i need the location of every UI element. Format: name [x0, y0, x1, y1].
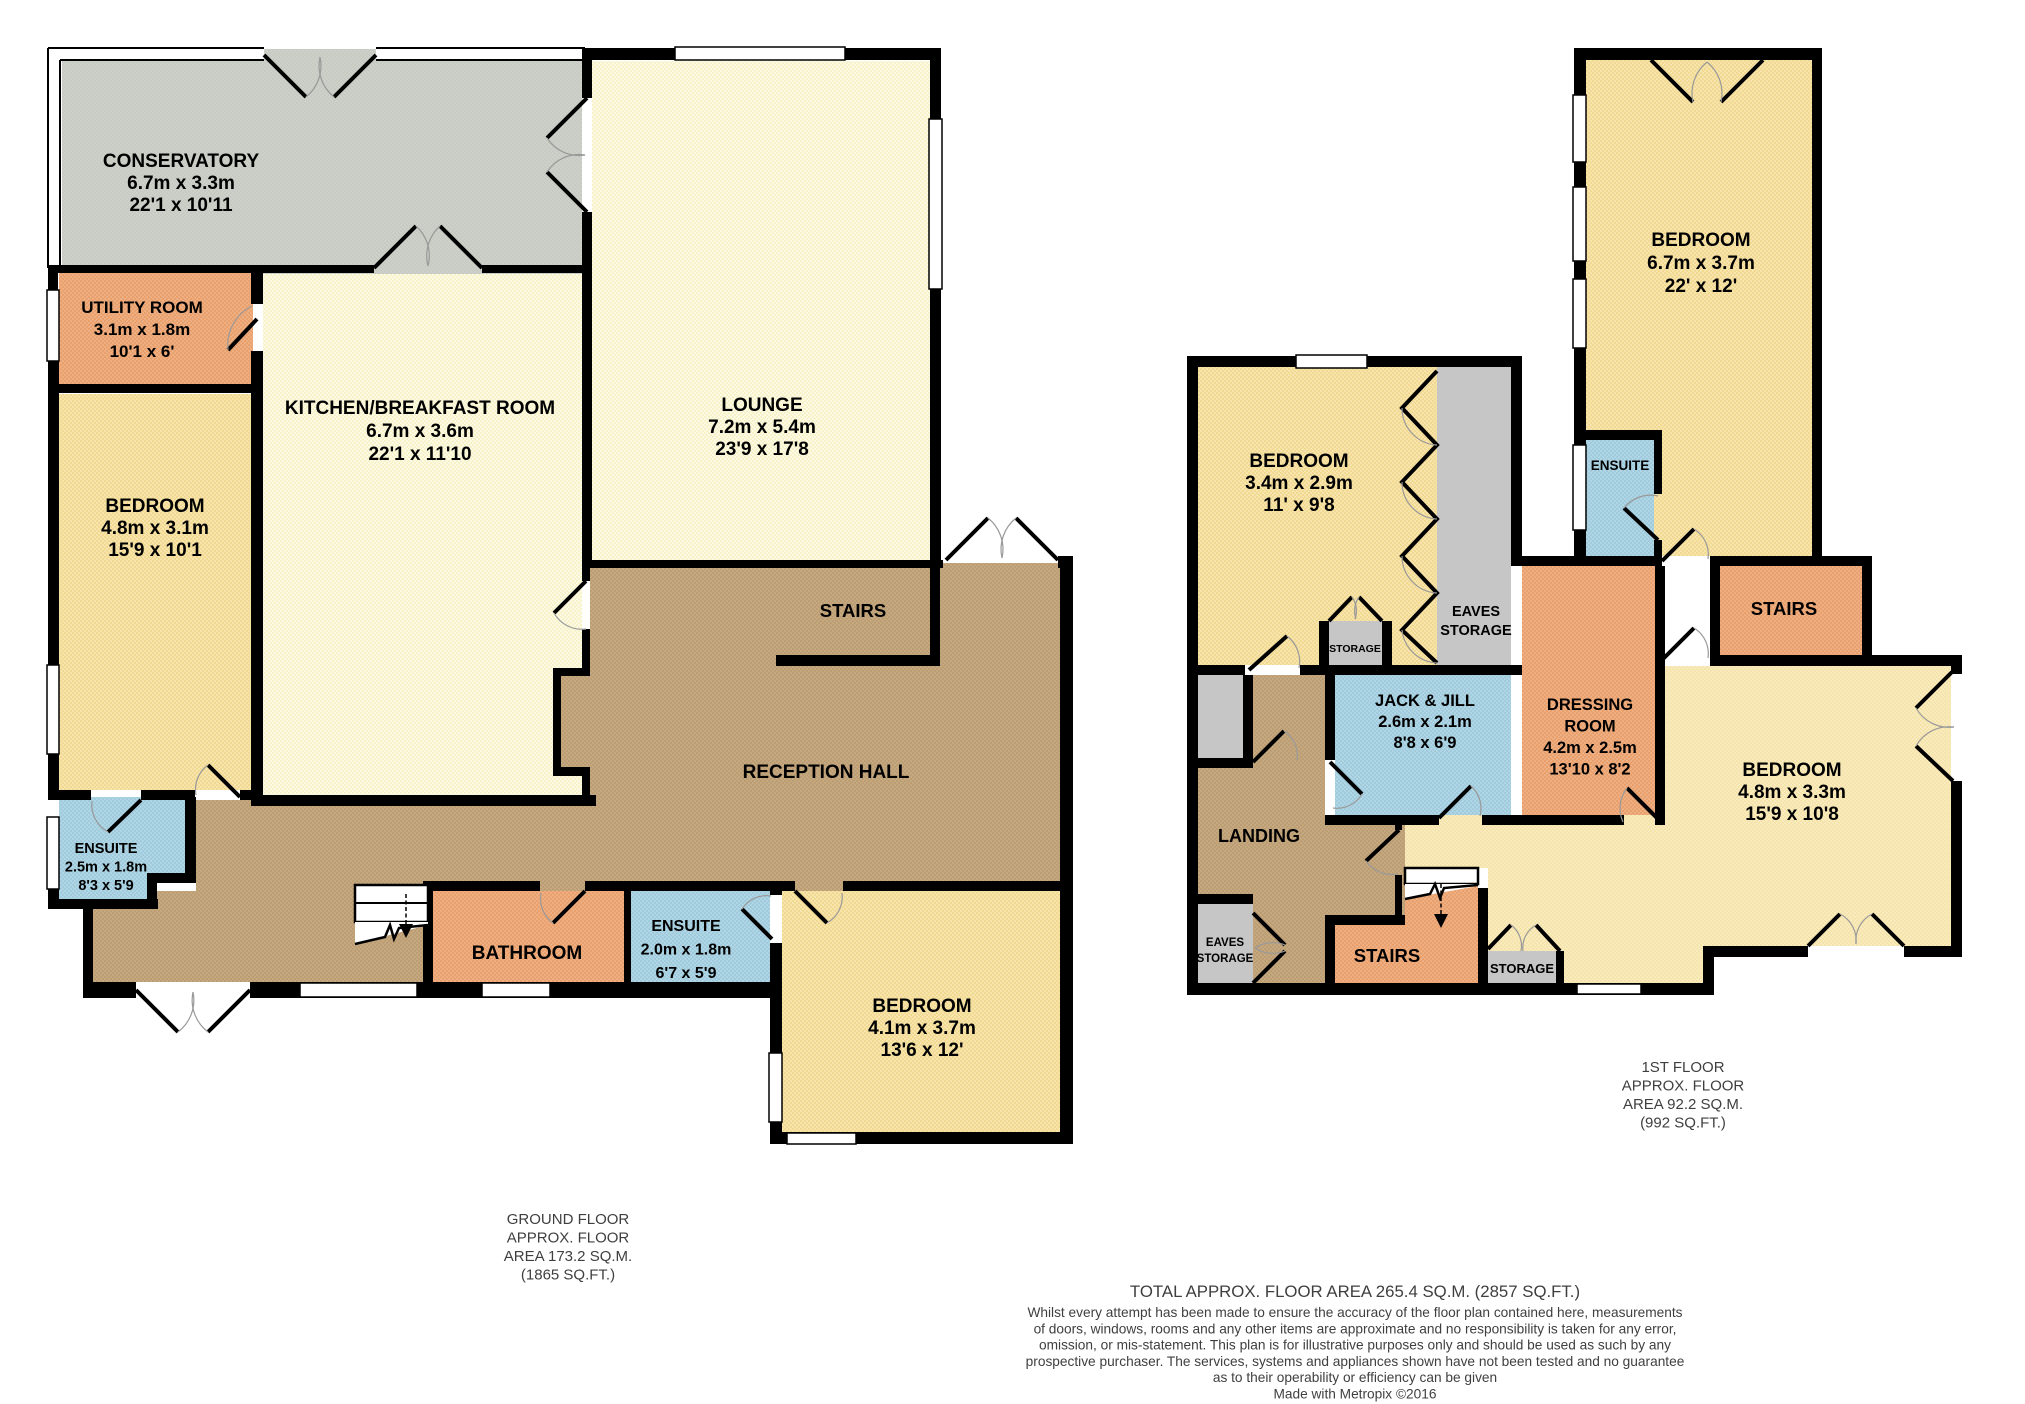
svg-text:2.5m x 1.8m: 2.5m x 1.8m — [65, 860, 147, 876]
svg-text:LOUNGE: LOUNGE — [721, 395, 802, 416]
svg-text:8'3 x 5'9: 8'3 x 5'9 — [78, 878, 133, 894]
svg-text:13'6 x 12': 13'6 x 12' — [881, 1040, 964, 1061]
svg-text:ENSUITE: ENSUITE — [75, 841, 138, 857]
svg-text:15'9 x 10'1: 15'9 x 10'1 — [108, 540, 202, 561]
svg-text:6.7m x 3.7m: 6.7m x 3.7m — [1647, 253, 1755, 274]
svg-text:1ST FLOOR: 1ST FLOOR — [1641, 1059, 1724, 1076]
svg-text:STAIRS: STAIRS — [1354, 945, 1420, 966]
svg-text:EAVES: EAVES — [1206, 937, 1244, 949]
svg-text:22'1 x 11'10: 22'1 x 11'10 — [368, 444, 471, 465]
svg-text:(992 SQ.FT.): (992 SQ.FT.) — [1640, 1115, 1726, 1132]
svg-text:2.0m x 1.8m: 2.0m x 1.8m — [641, 942, 732, 959]
svg-text:BATHROOM: BATHROOM — [472, 943, 582, 964]
svg-text:ENSUITE: ENSUITE — [651, 918, 721, 935]
svg-text:AREA 173.2 SQ.M.: AREA 173.2 SQ.M. — [504, 1248, 632, 1265]
svg-text:UTILITY ROOM: UTILITY ROOM — [81, 298, 203, 317]
svg-text:KITCHEN/BREAKFAST ROOM: KITCHEN/BREAKFAST ROOM — [285, 398, 555, 419]
svg-text:6'7 x 5'9: 6'7 x 5'9 — [656, 965, 717, 982]
svg-text:3.4m x 2.9m: 3.4m x 2.9m — [1245, 473, 1353, 494]
svg-text:DRESSING: DRESSING — [1547, 696, 1633, 714]
svg-text:6.7m x 3.6m: 6.7m x 3.6m — [366, 421, 474, 442]
svg-text:JACK & JILL: JACK & JILL — [1375, 692, 1475, 710]
svg-text:BEDROOM: BEDROOM — [1249, 451, 1348, 472]
svg-text:15'9 x 10'8: 15'9 x 10'8 — [1745, 804, 1839, 825]
svg-text:STORAGE: STORAGE — [1197, 953, 1254, 965]
svg-text:BEDROOM: BEDROOM — [872, 996, 971, 1017]
svg-text:omission, or mis-statement. Th: omission, or mis-statement. This plan is… — [1039, 1338, 1671, 1353]
svg-text:4.2m x 2.5m: 4.2m x 2.5m — [1543, 739, 1637, 757]
svg-text:23'9 x 17'8: 23'9 x 17'8 — [715, 439, 809, 460]
svg-text:Made with Metropix ©2016: Made with Metropix ©2016 — [1273, 1387, 1436, 1402]
svg-text:ENSUITE: ENSUITE — [1591, 458, 1650, 473]
svg-text:11' x 9'8: 11' x 9'8 — [1263, 495, 1334, 516]
svg-text:AREA 92.2 SQ.M.: AREA 92.2 SQ.M. — [1623, 1096, 1743, 1113]
svg-text:3.1m x 1.8m: 3.1m x 1.8m — [94, 320, 190, 339]
svg-text:BEDROOM: BEDROOM — [1742, 760, 1841, 781]
svg-text:Whilst every attempt has been: Whilst every attempt has been made to en… — [1027, 1305, 1682, 1320]
svg-text:10'1 x 6': 10'1 x 6' — [110, 342, 175, 361]
svg-text:APPROX. FLOOR: APPROX. FLOOR — [507, 1230, 630, 1247]
svg-text:STORAGE: STORAGE — [1440, 623, 1512, 639]
svg-text:ROOM: ROOM — [1564, 718, 1615, 736]
svg-text:7.2m x 5.4m: 7.2m x 5.4m — [708, 417, 816, 438]
svg-text:STAIRS: STAIRS — [1751, 598, 1817, 619]
svg-text:4.8m x 3.1m: 4.8m x 3.1m — [101, 518, 209, 539]
svg-text:RECEPTION HALL: RECEPTION HALL — [743, 762, 910, 783]
svg-text:of doors, windows, rooms and a: of doors, windows, rooms and any other i… — [1034, 1321, 1677, 1336]
svg-text:2.6m x 2.1m: 2.6m x 2.1m — [1378, 713, 1472, 731]
svg-text:22' x 12': 22' x 12' — [1665, 276, 1737, 297]
svg-text:4.1m x 3.7m: 4.1m x 3.7m — [868, 1018, 976, 1039]
svg-text:8'8 x 6'9: 8'8 x 6'9 — [1394, 734, 1457, 752]
svg-text:GROUND FLOOR: GROUND FLOOR — [507, 1211, 630, 1228]
svg-text:STORAGE: STORAGE — [1329, 643, 1381, 655]
svg-text:BEDROOM: BEDROOM — [105, 496, 204, 517]
svg-text:APPROX. FLOOR: APPROX. FLOOR — [1622, 1078, 1745, 1095]
svg-text:prospective purchaser. The ser: prospective purchaser. The services, sys… — [1026, 1354, 1685, 1369]
svg-text:as to their operability or eff: as to their operability or efficiency ca… — [1213, 1370, 1497, 1385]
svg-text:LANDING: LANDING — [1218, 826, 1300, 846]
svg-text:STORAGE: STORAGE — [1490, 961, 1554, 976]
svg-text:4.8m x 3.3m: 4.8m x 3.3m — [1738, 782, 1846, 803]
svg-text:TOTAL APPROX. FLOOR AREA 265.4: TOTAL APPROX. FLOOR AREA 265.4 SQ.M. (28… — [1130, 1282, 1580, 1301]
svg-text:(1865 SQ.FT.): (1865 SQ.FT.) — [521, 1267, 615, 1284]
svg-text:STAIRS: STAIRS — [820, 600, 886, 621]
svg-text:BEDROOM: BEDROOM — [1651, 230, 1750, 251]
svg-text:CONSERVATORY: CONSERVATORY — [103, 151, 260, 172]
svg-text:EAVES: EAVES — [1452, 604, 1500, 620]
svg-text:6.7m x 3.3m: 6.7m x 3.3m — [127, 173, 235, 194]
svg-text:22'1 x 10'11: 22'1 x 10'11 — [129, 195, 233, 216]
svg-text:13'10 x 8'2: 13'10 x 8'2 — [1549, 761, 1630, 779]
